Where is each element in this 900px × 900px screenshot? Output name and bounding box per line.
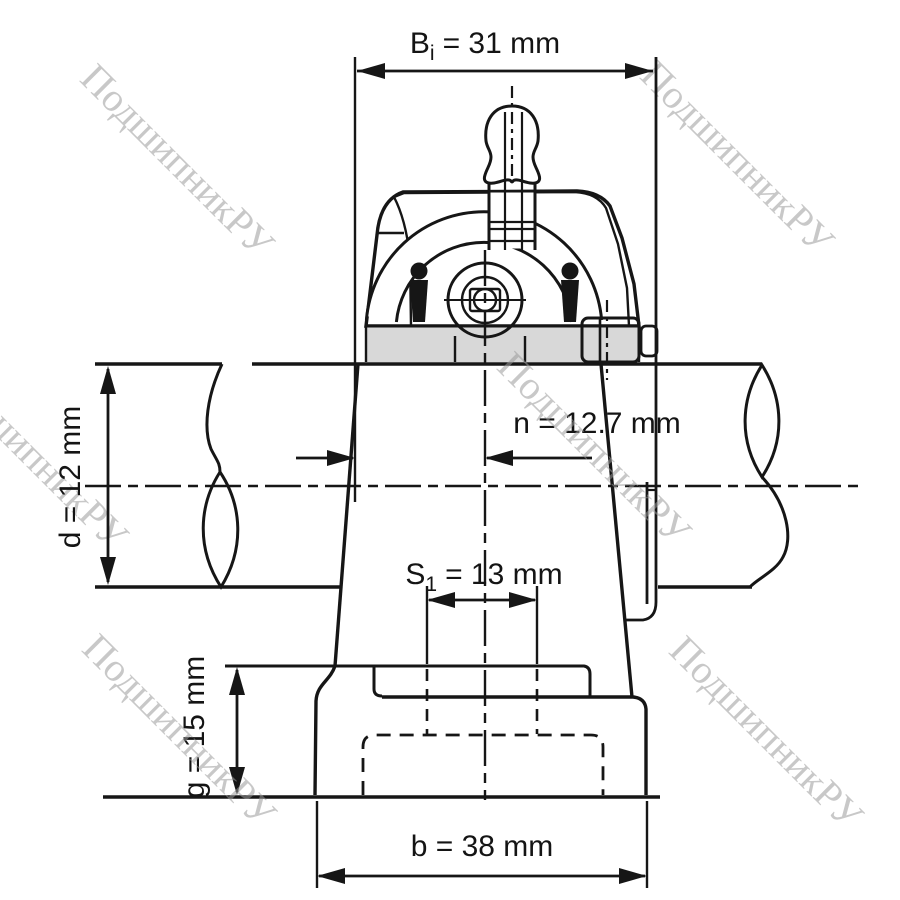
arrowhead-left-icon — [357, 63, 385, 79]
shaft-break-lens-left — [203, 472, 238, 587]
hidden-bolt-slot-lines — [427, 669, 537, 734]
seal-left-lip — [411, 263, 428, 280]
bearing-drawing-canvas: ПодшипникРУ ПодшипникРУ ПодшипникРУ — [0, 0, 900, 900]
housing-cap — [366, 191, 639, 362]
arrowhead-up-icon — [100, 366, 116, 394]
dim-d-label: d = 12 mm — [54, 406, 87, 549]
foot-top-and-right-edge — [382, 697, 646, 795]
foot-step-left — [374, 666, 382, 696]
dim-S1-label: S1= 13 mm — [405, 558, 562, 596]
dimension-d: d = 12 mm — [54, 366, 116, 585]
shaft — [85, 364, 858, 587]
foot-step-edge — [225, 666, 590, 696]
arrowhead-up-icon — [229, 667, 245, 695]
arrowhead-down-icon — [100, 557, 116, 585]
seal-left — [410, 280, 428, 322]
arrowhead-left-icon — [317, 868, 345, 884]
shaft-break-curve-right — [750, 477, 788, 587]
shaft-break-curve-left — [207, 364, 222, 472]
watermark-text: ПодшипникРУ — [661, 627, 873, 839]
seal-right-lip — [562, 263, 579, 280]
foot-left-edge — [315, 666, 335, 795]
watermark-text: ПодшипникРУ — [72, 55, 284, 267]
arrowhead-left-icon — [485, 450, 513, 466]
hidden-base-recess — [363, 735, 603, 795]
pillow-block-bearing-diagram: ПодшипникРУ ПодшипникРУ ПодшипникРУ — [0, 0, 900, 900]
watermark-text: ПодшипникРУ — [632, 52, 844, 264]
watermark-text: ПодшипникРУ — [489, 343, 701, 555]
dim-Bi-label: Bi= 31 mm — [410, 27, 560, 65]
seal-right — [561, 280, 579, 322]
dim-b-label: b = 38 mm — [411, 830, 554, 863]
arrowhead-right-icon — [509, 592, 537, 608]
arrowhead-right-icon — [619, 868, 647, 884]
dimension-b: b = 38 mm — [317, 801, 647, 888]
shaft-outline — [95, 364, 762, 587]
shaft-break-lens-right — [745, 365, 779, 477]
